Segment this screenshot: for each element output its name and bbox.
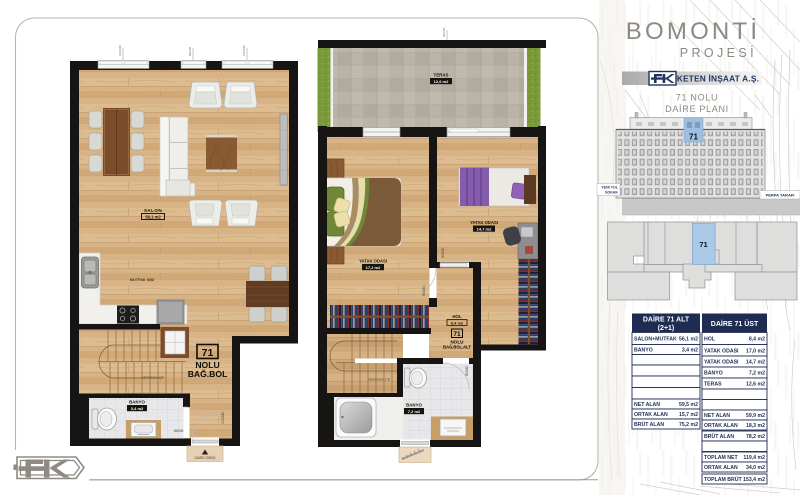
svg-text:8,4 m2: 8,4 m2 <box>749 337 765 343</box>
svg-text:DAİRE GİRİŞİ: DAİRE GİRİŞİ <box>195 455 216 460</box>
svg-text:BANYO: BANYO <box>634 348 653 354</box>
svg-text:153,4 m2: 153,4 m2 <box>743 477 765 483</box>
svg-text:MERDİVEN 17B: MERDİVEN 17B <box>368 377 390 382</box>
svg-text:BANYO: BANYO <box>704 371 723 377</box>
svg-text:56,1 m2: 56,1 m2 <box>679 337 698 343</box>
svg-text:BRÜT ALAN: BRÜT ALAN <box>704 433 734 440</box>
svg-text:YATAK ODASI: YATAK ODASI <box>359 259 387 264</box>
svg-text:80/240: 80/240 <box>188 46 192 56</box>
svg-text:BAĞ.BOL: BAĞ.BOL <box>188 368 228 379</box>
svg-text:SALON: SALON <box>144 208 162 213</box>
svg-text:8,4 m2: 8,4 m2 <box>451 320 464 325</box>
svg-text:(2+1): (2+1) <box>658 325 675 332</box>
svg-text:MERDİVEN 17B: MERDİVEN 17B <box>142 375 164 380</box>
svg-text:YATAK ODASI: YATAK ODASI <box>704 349 739 355</box>
svg-text:TERAS: TERAS <box>704 382 722 388</box>
svg-text:59,5 m2: 59,5 m2 <box>679 402 698 408</box>
svg-text:71 NOLU: 71 NOLU <box>676 93 718 103</box>
svg-text:90/240: 90/240 <box>442 27 446 37</box>
svg-text:SOKAK: SOKAK <box>605 191 618 195</box>
svg-text:PERPA TARAFI: PERPA TARAFI <box>766 192 795 197</box>
svg-text:BRÜT ALAN: BRÜT ALAN <box>634 421 664 428</box>
svg-text:12,6 m2: 12,6 m2 <box>434 79 449 84</box>
svg-text:17,0 m2: 17,0 m2 <box>746 349 765 355</box>
svg-text:17,2 m2: 17,2 m2 <box>366 265 381 270</box>
svg-text:80/240: 80/240 <box>465 366 469 376</box>
svg-text:YATAK ODASI: YATAK ODASI <box>704 360 739 366</box>
svg-text:100/240: 100/240 <box>221 412 225 424</box>
svg-text:BANYO: BANYO <box>406 403 422 408</box>
svg-text:TERAS: TERAS <box>434 73 449 78</box>
svg-text:DAİRE PLANI: DAİRE PLANI <box>665 104 729 114</box>
svg-text:NET ALAN: NET ALAN <box>634 402 660 408</box>
svg-text:ORTAK ALAN: ORTAK ALAN <box>704 465 738 471</box>
svg-text:3,4 m2: 3,4 m2 <box>131 406 144 411</box>
svg-text:DAİRE 71 ALT: DAİRE 71 ALT <box>643 316 690 324</box>
svg-text:SALON+MUTFAK: SALON+MUTFAK <box>634 337 677 343</box>
svg-text:18,3 m2: 18,3 m2 <box>746 423 765 429</box>
svg-text:75,2 m2: 75,2 m2 <box>679 422 698 428</box>
svg-text:TOPLAM BRÜT: TOPLAM BRÜT <box>704 476 742 483</box>
svg-text:3,4 m2: 3,4 m2 <box>682 348 698 354</box>
svg-text:ORTAK ALAN: ORTAK ALAN <box>704 423 738 429</box>
svg-text:14,7 m2: 14,7 m2 <box>746 360 765 366</box>
svg-text:80/240: 80/240 <box>174 429 184 433</box>
svg-text:YENİ YOL: YENİ YOL <box>601 186 619 190</box>
svg-text:BOMONTİ: BOMONTİ <box>626 18 760 45</box>
svg-text:MUTFAK NİŞİ: MUTFAK NİŞİ <box>130 278 154 282</box>
svg-text:BAĞ.BOL.ALT: BAĞ.BOL.ALT <box>443 345 471 350</box>
svg-text:71: 71 <box>699 240 707 249</box>
svg-text:71: 71 <box>689 133 698 142</box>
svg-text:34,0 m2: 34,0 m2 <box>746 465 765 471</box>
svg-text:71: 71 <box>453 331 461 338</box>
svg-text:DAİRE 71 ÜST: DAİRE 71 ÜST <box>711 319 759 328</box>
svg-text:90/240: 90/240 <box>422 286 426 296</box>
svg-text:59,9 m2: 59,9 m2 <box>746 413 765 419</box>
svg-text:ORTAK ALAN: ORTAK ALAN <box>634 412 668 418</box>
svg-text:78,2 m2: 78,2 m2 <box>746 434 765 440</box>
svg-text:56,1 m2: 56,1 m2 <box>145 214 161 219</box>
svg-text:HOL: HOL <box>452 314 462 319</box>
svg-text:15,7 m2: 15,7 m2 <box>679 412 698 418</box>
svg-text:71: 71 <box>202 347 214 359</box>
svg-text:BANYO: BANYO <box>129 400 145 405</box>
svg-text:160/240: 160/240 <box>118 45 122 56</box>
svg-text:PROJESİ: PROJESİ <box>680 46 757 60</box>
svg-text:HOL: HOL <box>704 337 716 343</box>
svg-text:YATAK ODASI: YATAK ODASI <box>470 220 498 225</box>
svg-text:NET ALAN: NET ALAN <box>704 413 730 419</box>
svg-text:90/240: 90/240 <box>441 248 445 258</box>
svg-text:7,2 m2: 7,2 m2 <box>749 371 765 377</box>
svg-text:7,2 m2: 7,2 m2 <box>408 409 421 414</box>
svg-text:12,6 m2: 12,6 m2 <box>746 382 765 388</box>
svg-text:14,7 m2: 14,7 m2 <box>477 227 492 232</box>
svg-text:160/240: 160/240 <box>242 45 246 56</box>
svg-text:TOPLAM NET: TOPLAM NET <box>704 455 738 461</box>
svg-text:KETEN İNŞAAT A.Ş.: KETEN İNŞAAT A.Ş. <box>677 74 759 84</box>
svg-text:119,4 m2: 119,4 m2 <box>743 455 765 461</box>
